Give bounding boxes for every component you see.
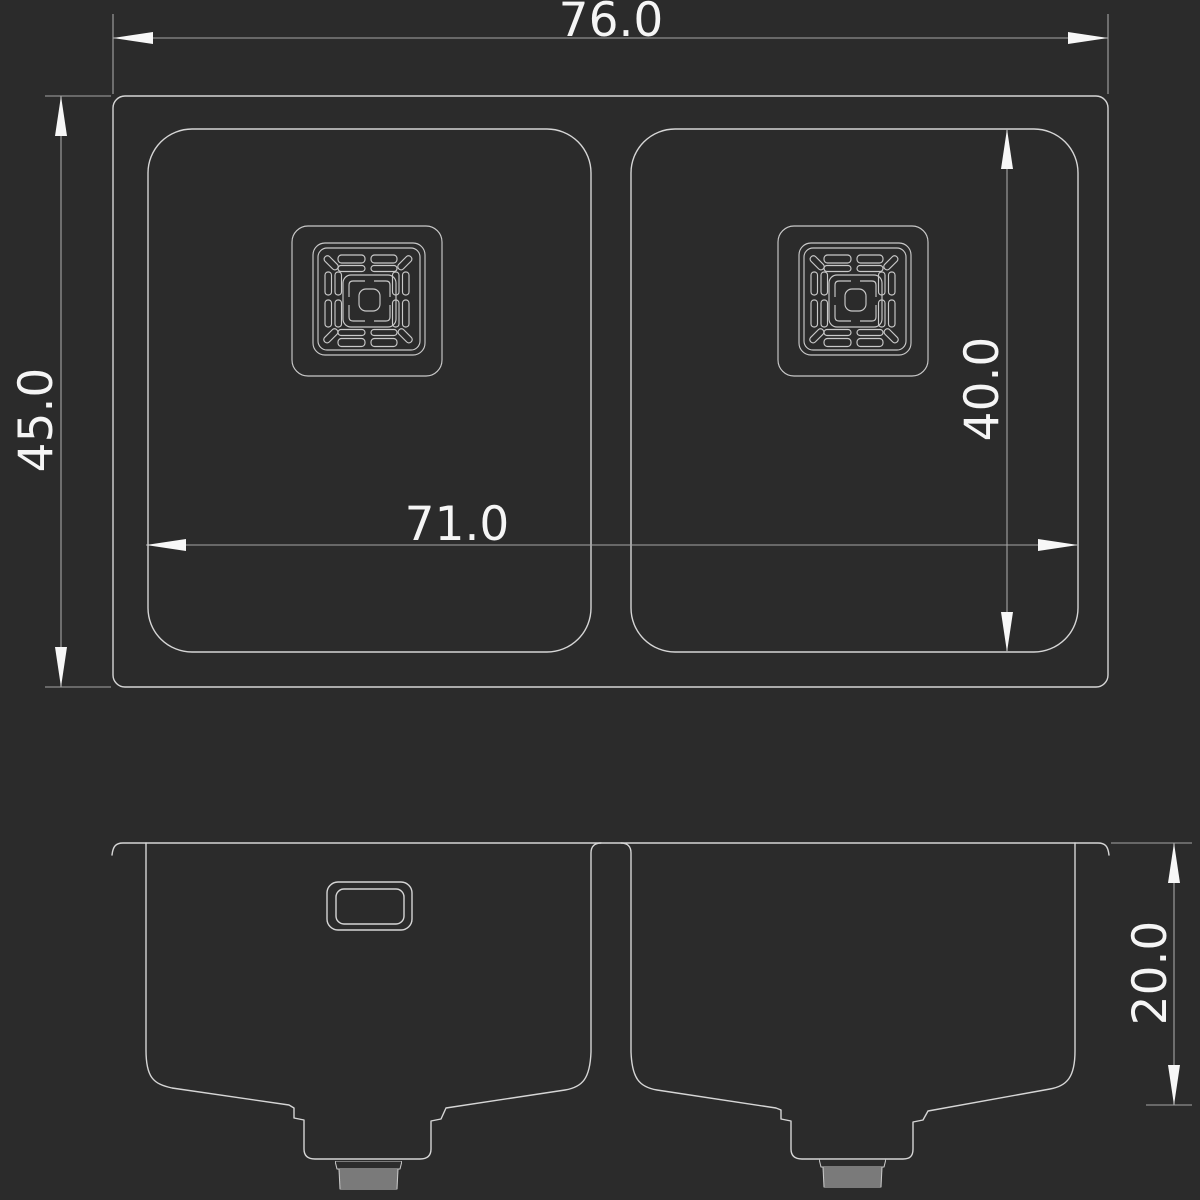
right-drain-tailpiece xyxy=(819,1159,886,1187)
sink-technical-drawing: 76.0 45.0 71.0 40.0 xyxy=(0,0,1200,1200)
arrowhead-top xyxy=(1001,129,1013,169)
left-bowl-outline xyxy=(148,129,591,652)
arrowhead-top xyxy=(1168,843,1180,883)
dimension-combined-bowl-width: 71.0 xyxy=(146,497,1078,552)
sink-rim-line xyxy=(112,843,1109,855)
front-view xyxy=(112,843,1109,1189)
dimension-label-overall-width: 76.0 xyxy=(559,0,664,48)
dimension-overall-depth: 45.0 xyxy=(9,96,111,687)
arrowhead-left xyxy=(113,32,153,44)
technical-drawing-page: 76.0 45.0 71.0 40.0 xyxy=(0,0,1200,1200)
arrowhead-top xyxy=(55,96,67,136)
left-bowl-profile xyxy=(146,843,601,1159)
dimension-label-overall-depth: 45.0 xyxy=(9,368,64,473)
arrowhead-bottom xyxy=(55,647,67,687)
arrowhead-right xyxy=(1068,32,1108,44)
dimension-label-bowl-inner-depth: 40.0 xyxy=(955,337,1010,442)
dimension-overall-width: 76.0 xyxy=(113,0,1108,94)
arrowhead-left xyxy=(146,539,186,551)
dimension-bowl-inner-depth: 40.0 xyxy=(955,129,1013,652)
right-bowl-outline xyxy=(631,129,1078,652)
dimension-label-combined-bowl-width: 71.0 xyxy=(405,497,510,552)
dimension-bowl-height: 20.0 xyxy=(1111,843,1192,1105)
arrowhead-bottom xyxy=(1168,1065,1180,1105)
dimension-label-bowl-height: 20.0 xyxy=(1123,921,1178,1026)
overflow-opening-inner xyxy=(336,889,404,924)
arrowhead-right xyxy=(1038,539,1078,551)
left-drain-grate xyxy=(292,226,442,376)
left-drain-tailpiece xyxy=(335,1161,402,1189)
right-drain-grate xyxy=(778,226,928,376)
dimension-annotations: 76.0 45.0 71.0 40.0 xyxy=(9,0,1192,1105)
arrowhead-bottom xyxy=(1001,612,1013,652)
right-bowl-profile xyxy=(621,843,1075,1159)
